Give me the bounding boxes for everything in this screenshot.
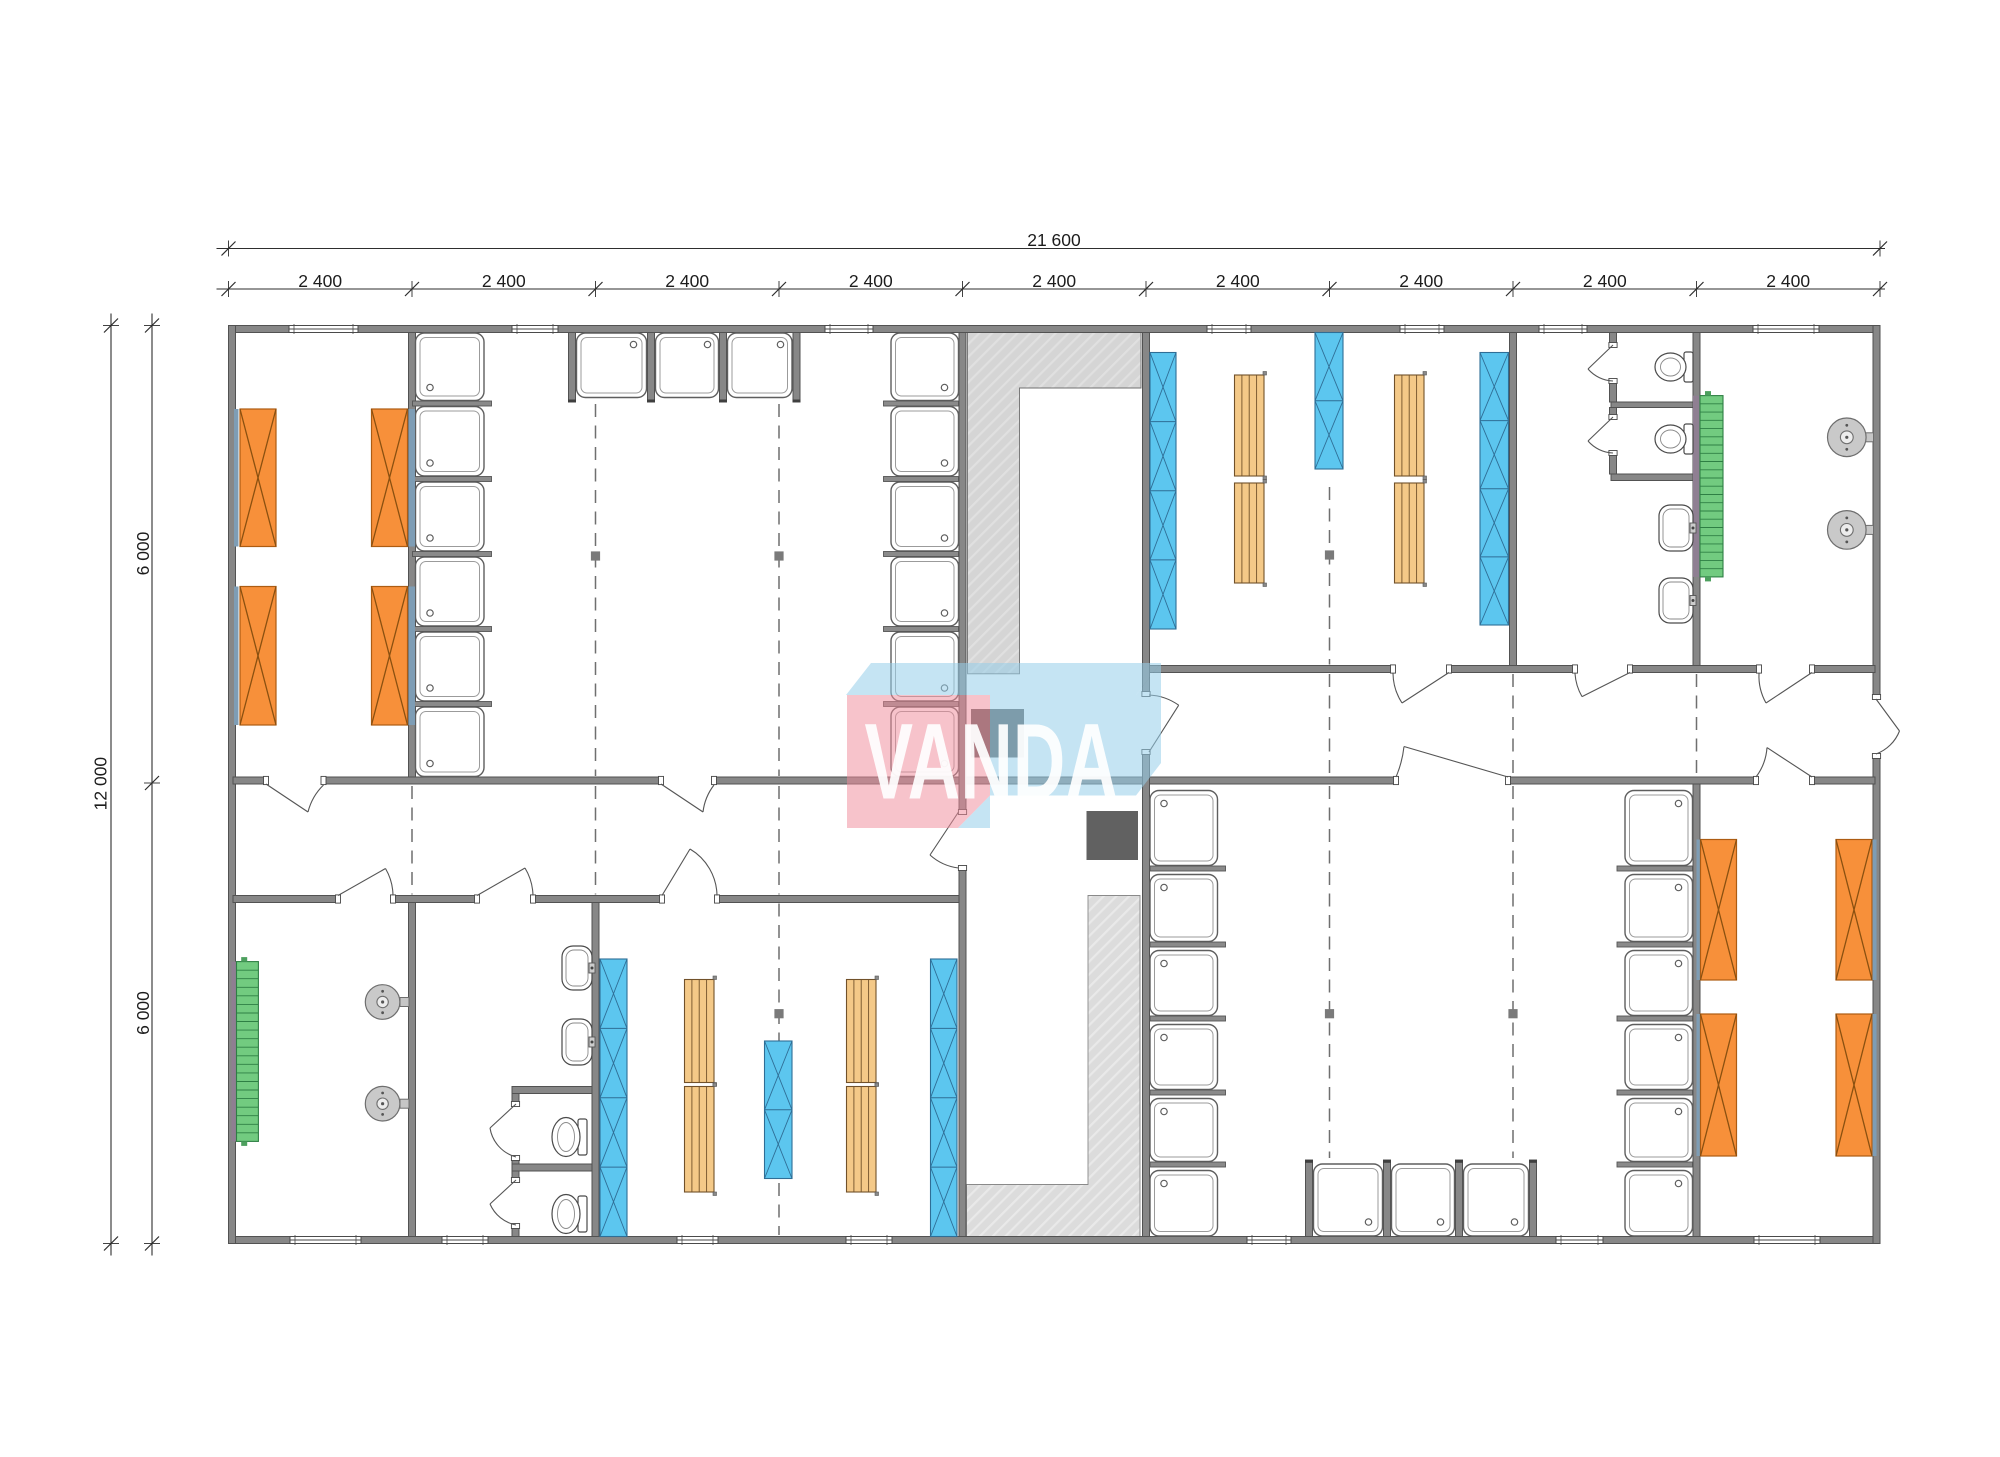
svg-text:6 000: 6 000 <box>133 991 153 1035</box>
svg-text:2 400: 2 400 <box>1216 271 1260 291</box>
svg-text:6 000: 6 000 <box>133 531 153 575</box>
svg-text:2 400: 2 400 <box>1766 271 1810 291</box>
svg-text:2 400: 2 400 <box>298 271 342 291</box>
svg-text:VANDA: VANDA <box>865 701 1118 822</box>
svg-text:2 400: 2 400 <box>849 271 893 291</box>
svg-text:21 600: 21 600 <box>1027 230 1081 250</box>
svg-text:2 400: 2 400 <box>1032 271 1076 291</box>
svg-text:2 400: 2 400 <box>1583 271 1627 291</box>
svg-text:2 400: 2 400 <box>1399 271 1443 291</box>
svg-text:12 000: 12 000 <box>91 757 111 811</box>
svg-text:2 400: 2 400 <box>482 271 526 291</box>
svg-text:2 400: 2 400 <box>665 271 709 291</box>
